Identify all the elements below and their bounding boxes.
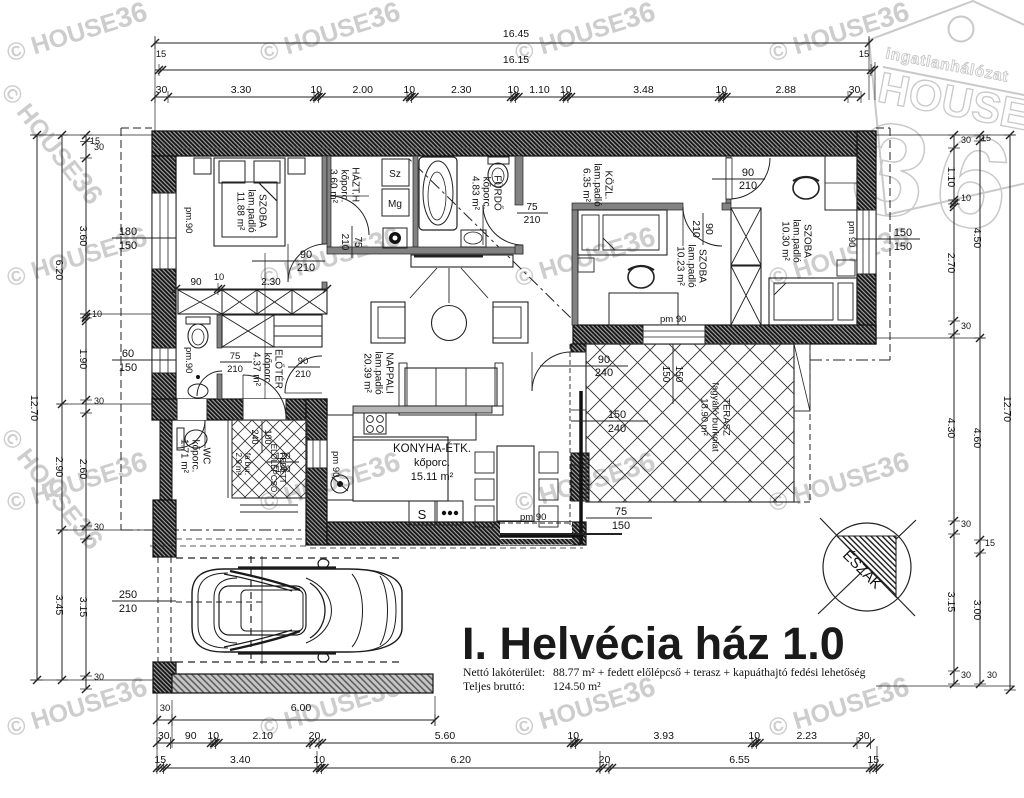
svg-text:Teljes bruttó:: Teljes bruttó: bbox=[463, 680, 525, 693]
svg-text:HÁZT.H.: HÁZT.H. bbox=[350, 167, 363, 205]
svg-text:SZOBA: SZOBA bbox=[802, 224, 813, 258]
svg-text:5.60: 5.60 bbox=[435, 730, 456, 742]
svg-text:30: 30 bbox=[156, 84, 168, 96]
svg-text:10: 10 bbox=[310, 84, 322, 96]
svg-text:30: 30 bbox=[849, 84, 861, 96]
svg-text:2.9 m²: 2.9 m² bbox=[234, 453, 243, 476]
svg-text:10: 10 bbox=[313, 754, 325, 766]
svg-text:2.70: 2.70 bbox=[945, 253, 957, 274]
svg-text:3.60 m²: 3.60 m² bbox=[328, 169, 339, 204]
svg-text:10: 10 bbox=[715, 84, 727, 96]
svg-text:2.90: 2.90 bbox=[53, 457, 65, 478]
svg-text:2.23: 2.23 bbox=[797, 730, 818, 742]
svg-text:30: 30 bbox=[94, 396, 104, 406]
svg-text:90: 90 bbox=[300, 249, 312, 261]
svg-text:60: 60 bbox=[122, 348, 134, 360]
svg-text:2.00: 2.00 bbox=[353, 84, 374, 96]
svg-text:10: 10 bbox=[961, 193, 971, 203]
svg-text:90: 90 bbox=[185, 730, 197, 742]
svg-text:WC: WC bbox=[201, 448, 212, 465]
svg-text:3.30: 3.30 bbox=[231, 84, 252, 96]
svg-text:210: 210 bbox=[524, 215, 541, 226]
svg-text:1.10: 1.10 bbox=[529, 84, 550, 96]
svg-text:10: 10 bbox=[567, 730, 579, 742]
svg-text:30: 30 bbox=[961, 321, 971, 331]
svg-text:FEDETT: FEDETT bbox=[278, 452, 287, 483]
svg-text:4.50: 4.50 bbox=[971, 228, 983, 249]
svg-text:15: 15 bbox=[156, 49, 166, 59]
svg-text:I. Helvécia ház 1.0: I. Helvécia ház 1.0 bbox=[462, 618, 845, 669]
svg-text:pm 90: pm 90 bbox=[330, 451, 341, 477]
svg-text:210: 210 bbox=[119, 603, 137, 615]
svg-text:150: 150 bbox=[894, 241, 912, 253]
svg-text:1.90: 1.90 bbox=[77, 349, 89, 370]
svg-text:pm 90: pm 90 bbox=[660, 314, 686, 325]
svg-text:6.00: 6.00 bbox=[291, 702, 312, 714]
svg-text:4.30: 4.30 bbox=[945, 418, 957, 439]
svg-text:150: 150 bbox=[608, 409, 626, 421]
svg-text:150: 150 bbox=[119, 362, 137, 374]
svg-text:pm.90: pm.90 bbox=[183, 207, 194, 233]
svg-text:6.55: 6.55 bbox=[729, 754, 750, 766]
svg-text:3.15: 3.15 bbox=[77, 597, 89, 618]
svg-text:10: 10 bbox=[507, 84, 519, 96]
svg-text:KÖZL.: KÖZL. bbox=[603, 171, 615, 200]
svg-text:15: 15 bbox=[859, 49, 869, 59]
svg-text:2.30: 2.30 bbox=[261, 277, 281, 288]
svg-text:NAPPALI: NAPPALI bbox=[384, 352, 395, 394]
svg-text:90: 90 bbox=[742, 167, 754, 179]
svg-text:2.10: 2.10 bbox=[253, 730, 274, 742]
svg-text:lam.padló: lam.padló bbox=[791, 219, 802, 263]
svg-text:150: 150 bbox=[673, 366, 684, 383]
svg-text:75: 75 bbox=[615, 506, 627, 518]
svg-text:15.11 m²: 15.11 m² bbox=[411, 471, 454, 483]
svg-text:30: 30 bbox=[158, 730, 170, 742]
svg-text:2.60: 2.60 bbox=[77, 459, 89, 480]
svg-text:S: S bbox=[418, 507, 427, 522]
svg-text:30: 30 bbox=[94, 672, 104, 682]
svg-text:11.88 m²: 11.88 m² bbox=[235, 192, 246, 231]
svg-text:210: 210 bbox=[339, 234, 350, 251]
svg-text:6.20: 6.20 bbox=[451, 754, 472, 766]
svg-text:90: 90 bbox=[190, 277, 202, 288]
svg-text:4.83 m²: 4.83 m² bbox=[470, 176, 481, 211]
svg-text:3.15: 3.15 bbox=[945, 592, 957, 613]
svg-text:Sz: Sz bbox=[389, 169, 401, 180]
svg-text:90: 90 bbox=[598, 354, 610, 366]
svg-text:lam.padló: lam.padló bbox=[592, 163, 603, 207]
svg-text:3.93: 3.93 bbox=[654, 730, 675, 742]
svg-text:FÜRDŐ: FÜRDŐ bbox=[492, 175, 506, 211]
svg-text:KONYHA-ÉTK.: KONYHA-ÉTK. bbox=[393, 442, 471, 455]
svg-text:240: 240 bbox=[608, 423, 626, 435]
svg-text:124.50 m²: 124.50 m² bbox=[553, 680, 601, 693]
svg-text:15: 15 bbox=[154, 754, 166, 766]
svg-text:kőporc.: kőporc. bbox=[414, 457, 450, 469]
svg-text:2.88: 2.88 bbox=[776, 84, 797, 96]
svg-text:210: 210 bbox=[227, 364, 243, 375]
svg-text:10.30 m²: 10.30 m² bbox=[780, 221, 791, 261]
svg-text:fa bur.: fa bur. bbox=[243, 453, 252, 475]
svg-text:15: 15 bbox=[867, 754, 879, 766]
svg-text:SZOBA: SZOBA bbox=[697, 249, 708, 283]
svg-text:150: 150 bbox=[894, 227, 912, 239]
svg-text:3.00: 3.00 bbox=[971, 600, 983, 621]
svg-text:lam.padló: lam.padló bbox=[373, 351, 384, 395]
svg-text:10.23 m²: 10.23 m² bbox=[675, 246, 686, 286]
svg-text:2.30: 2.30 bbox=[451, 84, 472, 96]
svg-text:lam.padló: lam.padló bbox=[246, 189, 257, 233]
svg-text:3.60: 3.60 bbox=[77, 226, 89, 247]
svg-text:10: 10 bbox=[214, 272, 224, 282]
svg-text:12.70: 12.70 bbox=[28, 395, 40, 421]
svg-text:Mg: Mg bbox=[388, 199, 402, 210]
svg-text:ELŐLÉPCSŐ: ELŐLÉPCSŐ bbox=[269, 444, 278, 492]
svg-text:6.35 m²: 6.35 m² bbox=[581, 168, 592, 203]
svg-text:20.39 m²: 20.39 m² bbox=[362, 353, 373, 393]
svg-text:3.40: 3.40 bbox=[230, 754, 251, 766]
svg-text:240: 240 bbox=[250, 429, 260, 444]
svg-text:15: 15 bbox=[985, 538, 995, 548]
svg-text:Nettó lakóterület:: Nettó lakóterület: bbox=[463, 666, 545, 679]
svg-text:pm 90: pm 90 bbox=[846, 221, 857, 247]
svg-text:30: 30 bbox=[160, 703, 171, 714]
svg-text:210: 210 bbox=[295, 369, 311, 380]
svg-text:SZOBA: SZOBA bbox=[257, 194, 268, 228]
svg-text:210: 210 bbox=[297, 262, 315, 274]
svg-text:100: 100 bbox=[263, 429, 273, 444]
svg-text:210: 210 bbox=[739, 180, 757, 192]
svg-text:16.15: 16.15 bbox=[503, 54, 529, 66]
svg-text:pm.90: pm.90 bbox=[183, 347, 194, 373]
svg-text:30: 30 bbox=[858, 730, 870, 742]
svg-text:ELŐTÉR: ELŐTÉR bbox=[273, 349, 287, 389]
svg-text:75: 75 bbox=[230, 351, 241, 362]
svg-text:90: 90 bbox=[298, 356, 309, 367]
svg-text:12.70: 12.70 bbox=[1001, 396, 1013, 422]
svg-text:1.10: 1.10 bbox=[945, 167, 957, 188]
svg-text:4.37 m²: 4.37 m² bbox=[251, 352, 262, 387]
svg-text:150: 150 bbox=[612, 520, 630, 532]
svg-text:3.45: 3.45 bbox=[53, 595, 65, 616]
svg-text:75: 75 bbox=[352, 236, 363, 248]
svg-text:30: 30 bbox=[961, 670, 971, 680]
svg-text:20: 20 bbox=[599, 754, 611, 766]
svg-text:lam.padló: lam.padló bbox=[686, 244, 697, 288]
svg-text:88.77 m² + fedett előlépcső +: 88.77 m² + fedett előlépcső + terasz + k… bbox=[553, 666, 866, 679]
svg-text:150: 150 bbox=[660, 366, 671, 383]
svg-text:180: 180 bbox=[119, 226, 137, 238]
svg-text:240: 240 bbox=[595, 367, 613, 379]
svg-text:3.48: 3.48 bbox=[633, 84, 654, 96]
svg-text:250: 250 bbox=[119, 589, 137, 601]
svg-text:150: 150 bbox=[119, 240, 137, 252]
svg-text:10: 10 bbox=[207, 730, 219, 742]
svg-text:10: 10 bbox=[403, 84, 415, 96]
svg-text:6.20: 6.20 bbox=[53, 260, 65, 281]
svg-text:30: 30 bbox=[94, 522, 104, 532]
svg-text:kőporc.: kőporc. bbox=[262, 353, 273, 386]
svg-text:30: 30 bbox=[961, 519, 971, 529]
svg-text:20: 20 bbox=[309, 730, 321, 742]
svg-text:4.60: 4.60 bbox=[971, 428, 983, 449]
svg-text:10: 10 bbox=[560, 84, 572, 96]
svg-text:210: 210 bbox=[690, 220, 702, 238]
svg-text:30: 30 bbox=[94, 142, 104, 152]
svg-text:30: 30 bbox=[987, 670, 997, 680]
svg-text:16.45: 16.45 bbox=[503, 28, 529, 40]
svg-text:90: 90 bbox=[703, 223, 715, 235]
svg-text:10: 10 bbox=[748, 730, 760, 742]
svg-text:75: 75 bbox=[526, 202, 538, 213]
svg-text:30: 30 bbox=[961, 135, 971, 145]
svg-text:15: 15 bbox=[981, 133, 991, 143]
